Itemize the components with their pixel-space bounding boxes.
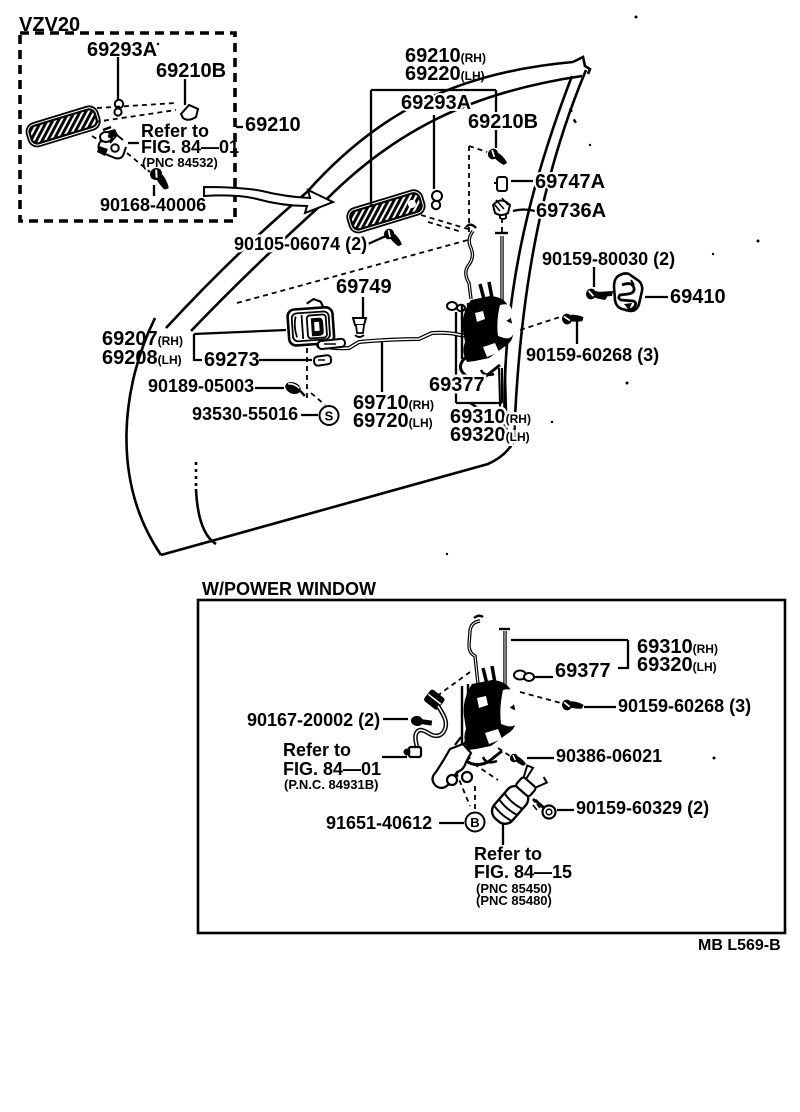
svg-text:(PNC 85480): (PNC 85480)	[476, 893, 552, 908]
svg-text:90189-05003: 90189-05003	[148, 376, 254, 396]
svg-text:93530-55016: 93530-55016	[192, 404, 298, 424]
svg-text:69410: 69410	[670, 286, 726, 308]
svg-text:90167-20002 (2): 90167-20002 (2)	[247, 710, 380, 730]
svg-text:(P.N.C. 84931B): (P.N.C. 84931B)	[284, 777, 378, 792]
svg-text:VZV20: VZV20	[19, 14, 80, 36]
svg-text:B: B	[470, 815, 479, 830]
svg-text:69293A: 69293A	[87, 39, 157, 61]
svg-text:69210: 69210	[245, 114, 301, 136]
svg-text:90159-60329 (2): 90159-60329 (2)	[576, 798, 709, 818]
svg-text:FIG. 84—15: FIG. 84—15	[474, 862, 572, 882]
svg-text:90159-80030 (2): 90159-80030 (2)	[542, 249, 675, 269]
svg-text:69210B: 69210B	[156, 60, 226, 82]
svg-text:69293A: 69293A	[401, 92, 471, 114]
svg-text:69377: 69377	[555, 660, 611, 682]
svg-text:MB L569-B: MB L569-B	[698, 937, 781, 954]
svg-text:W/POWER WINDOW: W/POWER WINDOW	[202, 579, 376, 599]
svg-text:90159-60268 (3): 90159-60268 (3)	[618, 696, 751, 716]
svg-text:69377: 69377	[429, 374, 485, 396]
svg-text:Refer to: Refer to	[474, 844, 542, 864]
svg-text:90159-60268 (3): 90159-60268 (3)	[526, 345, 659, 365]
svg-text:Refer to: Refer to	[283, 740, 351, 760]
svg-text:69736A: 69736A	[536, 200, 606, 222]
svg-text:69749: 69749	[336, 276, 392, 298]
svg-text:69210B: 69210B	[468, 111, 538, 133]
svg-text:90105-06074 (2): 90105-06074 (2)	[234, 234, 367, 254]
svg-text:90168-40006: 90168-40006	[100, 195, 206, 215]
svg-text:69273: 69273	[204, 349, 260, 371]
svg-text:(PNC 84532): (PNC 84532)	[142, 155, 218, 170]
svg-text:90386-06021: 90386-06021	[556, 746, 662, 766]
svg-text:69747A: 69747A	[535, 171, 605, 193]
svg-text:91651-40612: 91651-40612	[326, 813, 432, 833]
svg-text:FIG. 84—01: FIG. 84—01	[141, 137, 239, 157]
svg-text:S: S	[325, 409, 334, 424]
svg-text:FIG. 84—01: FIG. 84—01	[283, 759, 381, 779]
